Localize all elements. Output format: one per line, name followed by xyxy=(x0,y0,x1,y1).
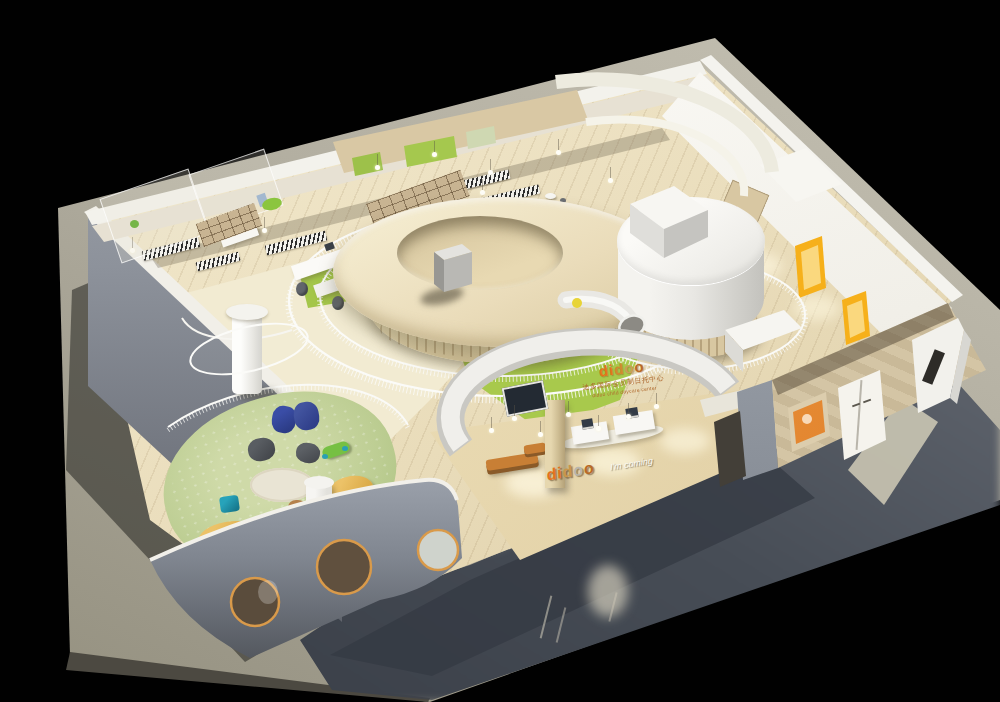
porthole-window xyxy=(317,540,371,594)
courtyard-front-wall xyxy=(150,480,462,658)
pendant-light xyxy=(566,412,571,417)
wall-logo-letter: o xyxy=(633,357,645,375)
pendant-light xyxy=(538,432,543,437)
porthole-highlight xyxy=(258,580,278,604)
pendant-light xyxy=(596,426,601,431)
slide-ball xyxy=(572,298,582,308)
pendant-light xyxy=(654,404,659,409)
pendant-light xyxy=(512,416,517,421)
porthole-window-mirror xyxy=(418,530,458,570)
pendant-light xyxy=(626,414,631,419)
render-stage: didoo 迪多国际会员制日托中心 didoo child daycare ce… xyxy=(0,0,1000,702)
pendant-light xyxy=(489,428,494,433)
floor-logo-letter: o xyxy=(584,459,596,478)
screen-baby-face xyxy=(802,414,812,424)
